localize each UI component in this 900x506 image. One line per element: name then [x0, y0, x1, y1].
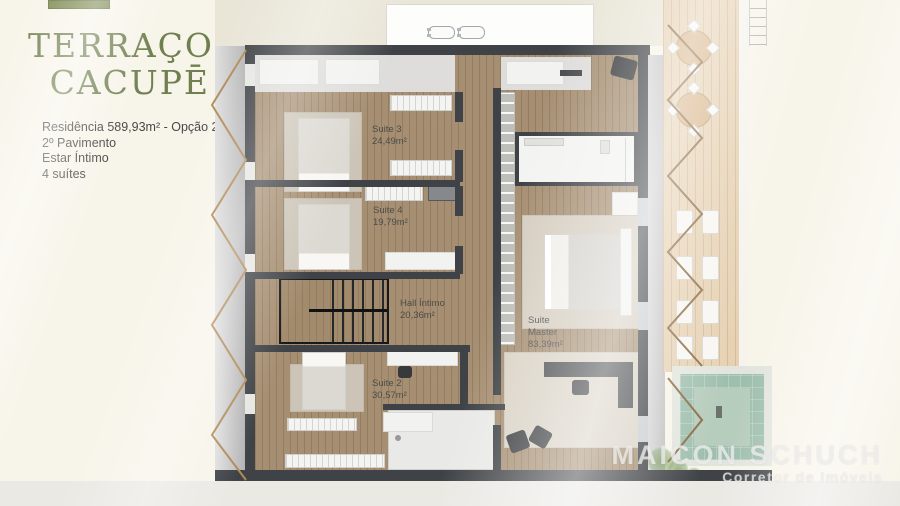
- shower-divider: [625, 138, 626, 182]
- bathroom-toilet: [600, 140, 610, 154]
- suite2-shower: [383, 412, 433, 432]
- suite4-bed: [298, 204, 350, 270]
- terrace-door: [638, 302, 648, 330]
- closet-counter: [325, 59, 380, 85]
- pool-inner-step: [694, 388, 750, 446]
- stair-rail: [309, 309, 387, 312]
- sun-lounger: [676, 336, 693, 360]
- suite2-bed: [302, 352, 346, 410]
- wall-corridor: [455, 150, 463, 182]
- car-icon: [428, 26, 455, 39]
- watermark-name: MAICON SCHUCH: [612, 441, 884, 469]
- wall-corridor: [455, 246, 463, 274]
- wall-corridor: [460, 352, 468, 408]
- suite3-wardrobe: [390, 95, 452, 111]
- wall-corridor: [455, 186, 463, 216]
- terrace-door: [638, 416, 648, 442]
- room-label-suite-master: Suite Master 83,39m²: [528, 315, 563, 351]
- wall-corridor: [455, 92, 463, 122]
- sun-lounger: [676, 210, 693, 234]
- pool-ladder-icon: [716, 406, 722, 418]
- sun-lounger: [676, 300, 693, 324]
- wall-top: [245, 45, 650, 55]
- wall-master: [493, 88, 501, 395]
- floorplan-page: TERRAÇO CACUPĒ Residência 589,93m² - Opç…: [0, 0, 900, 506]
- watermark-subtitle: Corretor de Imóveis: [612, 469, 884, 485]
- suite2-wardrobe: [287, 418, 357, 431]
- room-label-suite4: Suite 4 19,79m²: [373, 205, 408, 229]
- tv-unit: [560, 70, 582, 76]
- hall-desk: [385, 252, 458, 270]
- brand-logo-bar: [48, 0, 110, 9]
- balcony-door: [245, 254, 255, 274]
- wall-suite4-hall: [245, 272, 460, 279]
- office-desk: [618, 362, 633, 408]
- room-label-suite3: Suite 3 24,49m²: [372, 124, 407, 148]
- room-label-hall-intimo: Hall Íntimo 20,36m²: [400, 298, 445, 322]
- sun-lounger: [702, 210, 719, 234]
- suite4-wardrobe: [365, 186, 423, 201]
- master-bed: [544, 234, 624, 310]
- residence-area-option: Residência 589,93m² - Opção 2: [42, 120, 218, 136]
- deck-edge: [739, 0, 748, 374]
- sun-lounger: [702, 300, 719, 324]
- wall-bathroom: [383, 404, 505, 410]
- balcony-door: [245, 394, 255, 414]
- garage-area: [386, 4, 594, 48]
- left-balcony: [215, 46, 245, 470]
- closet-counter: [259, 59, 319, 85]
- wall-suite3-suite4: [245, 180, 460, 187]
- residence-floor: 2º Pavimento: [42, 136, 218, 152]
- balcony-door: [245, 64, 255, 86]
- residence-living: Estar Íntimo: [42, 151, 218, 167]
- master-headboard: [620, 228, 632, 316]
- suite2-closet: [285, 454, 385, 468]
- residence-suites: 4 suítes: [42, 167, 218, 183]
- page-title: TERRAÇO CACUPĒ: [28, 27, 210, 101]
- balcony-door: [245, 162, 255, 182]
- suite3-wardrobe: [390, 160, 452, 176]
- car-icon: [458, 26, 485, 39]
- bathroom-fixture: [395, 435, 401, 441]
- sun-lounger: [676, 256, 693, 280]
- bathroom-sink: [524, 138, 564, 146]
- wall-master: [493, 425, 501, 470]
- sun-lounger: [702, 256, 719, 280]
- watermark: MAICON SCHUCH Corretor de Imóveis: [612, 441, 884, 485]
- sun-lounger: [702, 336, 719, 360]
- room-label-suite2: Suite 2 30,57m²: [372, 378, 407, 402]
- office-chair: [572, 380, 589, 395]
- suite2-desk-chair: [398, 366, 412, 378]
- suite2-desk: [387, 350, 458, 366]
- wall-hall-suite2: [245, 345, 470, 352]
- page-title-line1: TERRAÇO: [28, 27, 210, 64]
- page-title-line2: CACUPĒ: [28, 64, 210, 101]
- dimension-lines: [749, 0, 767, 46]
- residence-info: Residência 589,93m² - Opção 2 2º Pavimen…: [42, 120, 218, 182]
- terrace-door: [638, 198, 648, 226]
- staircase: [279, 278, 389, 344]
- closet-counter: [506, 61, 564, 85]
- wall-right: [638, 45, 648, 470]
